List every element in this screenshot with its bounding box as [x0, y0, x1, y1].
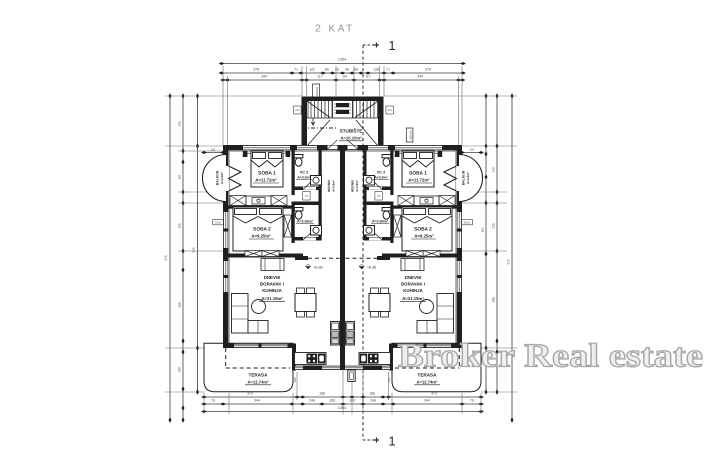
svg-text:143: 143	[178, 121, 182, 127]
svg-text:122: 122	[309, 68, 315, 72]
svg-text:344: 344	[261, 75, 267, 79]
svg-text:A=12.74m²: A=12.74m²	[416, 380, 438, 385]
svg-text:A=10.10m²: A=10.10m²	[340, 136, 362, 141]
svg-text:45: 45	[345, 68, 349, 72]
svg-text:A=9.25m²: A=9.25m²	[251, 234, 271, 239]
svg-text:A=12.74m²: A=12.74m²	[247, 380, 269, 385]
svg-text:1304: 1304	[338, 406, 346, 410]
svg-text:160: 160	[387, 377, 391, 382]
svg-text:975: 975	[164, 255, 168, 261]
svg-text:975: 975	[506, 259, 510, 265]
svg-text:+6.30: +6.30	[367, 266, 376, 270]
svg-text:KUHINJA: KUHINJA	[403, 288, 423, 293]
svg-text:100: 100	[178, 367, 182, 373]
svg-text:344: 344	[424, 399, 430, 403]
svg-text:+6.30: +6.30	[313, 266, 322, 270]
svg-text:Broker Real estate: Broker Real estate	[398, 338, 703, 375]
svg-text:528: 528	[192, 247, 196, 252]
svg-text:V1: V1	[377, 194, 381, 198]
svg-text:Z10: Z10	[295, 109, 300, 112]
svg-text:KUHINJA: KUHINJA	[262, 288, 282, 293]
svg-text:BORAVAK I: BORAVAK I	[260, 282, 284, 287]
svg-text:A=2.9m²: A=2.9m²	[332, 180, 336, 192]
svg-text:143: 143	[491, 167, 495, 173]
svg-text:HODNIK: HODNIK	[351, 179, 355, 192]
svg-text:STUBIŠTE: STUBIŠTE	[340, 128, 363, 134]
svg-text:A=2.6m²: A=2.6m²	[220, 172, 224, 184]
svg-text:BALKON: BALKON	[216, 170, 220, 185]
svg-text:278: 278	[253, 68, 259, 72]
svg-text:80: 80	[178, 175, 182, 179]
svg-text:HODNIK: HODNIK	[327, 179, 331, 192]
svg-text:SOBA 1: SOBA 1	[258, 171, 276, 177]
svg-text:2 KAT: 2 KAT	[315, 24, 355, 35]
svg-text:246: 246	[370, 399, 376, 403]
svg-text:BALKON: BALKON	[462, 170, 466, 185]
svg-text:84: 84	[343, 75, 347, 79]
svg-text:110: 110	[211, 148, 216, 152]
svg-text:240/120: 240/120	[409, 130, 412, 140]
svg-text:186: 186	[178, 302, 182, 308]
svg-text:80: 80	[354, 68, 358, 72]
svg-text:278: 278	[425, 68, 431, 72]
svg-text:71: 71	[294, 68, 298, 72]
svg-text:A=9.25m²: A=9.25m²	[414, 234, 434, 239]
svg-text:246: 246	[309, 399, 315, 403]
svg-text:DNEVNI: DNEVNI	[405, 275, 422, 280]
svg-text:BORAVAK I: BORAVAK I	[401, 282, 425, 287]
svg-text:1: 1	[388, 38, 395, 53]
svg-text:125: 125	[178, 223, 182, 229]
svg-text:A=3.0m²: A=3.0m²	[374, 176, 388, 180]
svg-text:A=2.6m²: A=2.6m²	[466, 172, 470, 184]
svg-text:344: 344	[417, 75, 423, 79]
svg-text:TERASA: TERASA	[249, 373, 269, 378]
svg-text:240/120: 240/120	[316, 86, 319, 96]
svg-text:160: 160	[293, 377, 297, 382]
svg-text:SOBA 2: SOBA 2	[253, 227, 271, 233]
svg-text:117: 117	[317, 75, 323, 79]
svg-text:373: 373	[431, 392, 437, 396]
svg-text:ZID10: ZID10	[464, 221, 471, 224]
svg-text:V1: V1	[305, 194, 309, 198]
svg-text:80: 80	[325, 68, 329, 72]
svg-text:A=2.60m²: A=2.60m²	[372, 220, 389, 224]
svg-text:A=31.15m²: A=31.15m²	[402, 296, 424, 301]
svg-text:130: 130	[373, 68, 379, 72]
svg-text:1304: 1304	[338, 58, 346, 62]
svg-text:75: 75	[211, 399, 215, 403]
svg-text:188: 188	[369, 392, 375, 396]
svg-text:Z10: Z10	[387, 109, 392, 112]
svg-text:A=11.72m²: A=11.72m²	[408, 178, 430, 183]
svg-text:373: 373	[247, 392, 253, 396]
svg-text:188: 188	[319, 392, 325, 396]
svg-text:75: 75	[470, 399, 474, 403]
svg-text:A=11.72m²: A=11.72m²	[255, 178, 277, 183]
svg-text:A=2.60m²: A=2.60m²	[297, 220, 314, 224]
svg-text:SOBA 2: SOBA 2	[414, 227, 432, 233]
svg-text:344: 344	[254, 399, 260, 403]
svg-text:DNEVNI: DNEVNI	[264, 275, 281, 280]
svg-text:71: 71	[386, 68, 390, 72]
svg-text:117: 117	[365, 75, 371, 79]
svg-text:110: 110	[470, 148, 475, 152]
svg-text:45: 45	[335, 68, 339, 72]
svg-text:A=2.9m²: A=2.9m²	[355, 180, 359, 192]
svg-text:A=31.15m²: A=31.15m²	[261, 296, 283, 301]
svg-text:186: 186	[491, 297, 495, 303]
svg-text:1: 1	[388, 434, 395, 449]
svg-text:ZID10: ZID10	[214, 221, 221, 224]
svg-text:VC 2: VC 2	[300, 171, 308, 175]
svg-text:125: 125	[491, 223, 495, 229]
svg-text:VC 2: VC 2	[377, 171, 385, 175]
svg-text:A=3.0m²: A=3.0m²	[297, 176, 311, 180]
svg-text:382: 382	[480, 227, 484, 232]
svg-text:SOBA 1: SOBA 1	[409, 171, 427, 177]
svg-text:100: 100	[329, 399, 335, 403]
